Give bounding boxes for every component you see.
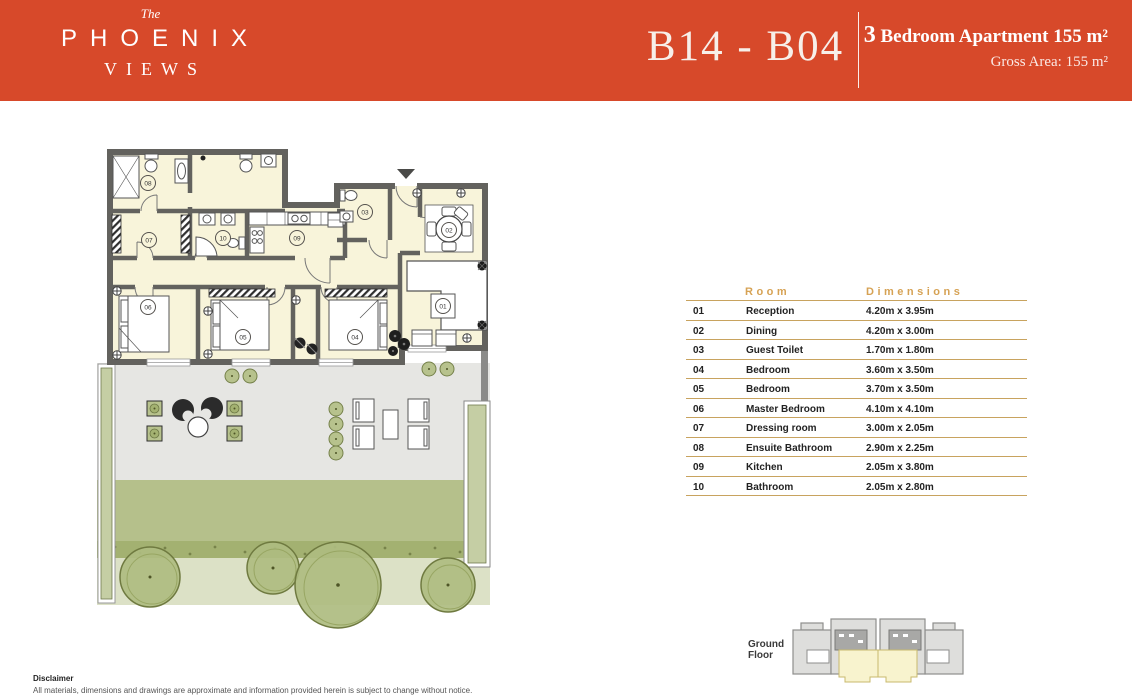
room-label-08: 08 [141,176,156,191]
row-room: Kitchen [746,457,866,478]
row-no: 05 [693,379,746,400]
header-dimensions: Dimensions [866,286,963,298]
row-no: 07 [693,418,746,439]
row-dimensions: 3.70m x 3.50m [866,379,1027,400]
svg-text:05: 05 [239,334,247,341]
room-label-01: 01 [436,299,451,314]
row-room: Bedroom [746,360,866,381]
apartment-info: 3 Bedroom Apartment 155 m² Gross Area: 1… [864,22,1108,71]
entrance-arrow-icon [397,169,415,179]
row-dimensions: 4.20m x 3.00m [866,321,1027,342]
header-bar: The PHOENIX VIEWS B14 - B04 3 Bedroom Ap… [0,0,1132,101]
row-no: 06 [693,399,746,420]
row-room: Master Bedroom [746,399,866,420]
row-no: 01 [693,301,746,322]
building-cores [835,630,921,650]
apartment-title-text: Bedroom Apartment 155 m² [876,26,1108,47]
row-dimensions: 1.70m x 1.80m [866,340,1027,361]
svg-text:03: 03 [361,209,369,216]
table-row: 10Bathroom2.05m x 2.80m [686,477,1027,497]
apartment-title: 3 Bedroom Apartment 155 m² [864,22,1108,49]
terrace-garden [97,348,490,628]
header-divider [858,12,859,88]
row-no: 03 [693,340,746,361]
brand-name: PHOENIX [48,25,253,53]
room-label-03: 03 [358,205,373,220]
header-room: Room [745,286,790,298]
row-dimensions: 2.90m x 2.25m [866,438,1027,459]
row-room: Bathroom [746,477,866,498]
dimensions-table: Room Dimensions 01Reception4.20m x 3.95m… [686,286,1027,496]
svg-text:02: 02 [445,227,453,234]
svg-text:06: 06 [144,304,152,311]
table-header: Room Dimensions [686,286,1027,301]
row-dimensions: 4.10m x 4.10m [866,399,1027,420]
planter-left [98,364,115,603]
row-no: 08 [693,438,746,459]
table-row: 01Reception4.20m x 3.95m [686,301,1027,321]
brand-the: The [48,6,253,22]
svg-text:09: 09 [293,235,301,242]
unit-code: B14 - B04 [638,22,853,71]
row-dimensions: 2.05m x 3.80m [866,457,1027,478]
room-label-10: 10 [216,231,231,246]
disclaimer: Disclaimer All materials, dimensions and… [33,674,933,695]
table-row: 09Kitchen2.05m x 3.80m [686,457,1027,477]
row-dimensions: 3.60m x 3.50m [866,360,1027,381]
apartment-number: 3 [864,22,876,48]
row-no: 04 [693,360,746,381]
table-row: 07Dressing room3.00m x 2.05m [686,418,1027,438]
floor-plan: 01 02 03 04 05 06 07 08 09 10 [95,145,495,690]
room-label-02: 02 [442,223,457,238]
row-room: Dressing room [746,418,866,439]
disclaimer-title: Disclaimer [33,674,933,683]
room-label-09: 09 [290,231,305,246]
room-label-05: 05 [236,330,251,345]
row-room: Bedroom [746,379,866,400]
brand-sub: VIEWS [48,59,253,80]
row-room: Reception [746,301,866,322]
brand-logo: The PHOENIX VIEWS [48,6,253,80]
row-dimensions: 3.00m x 2.05m [866,418,1027,439]
row-no: 02 [693,321,746,342]
table-row: 03Guest Toilet1.70m x 1.80m [686,340,1027,360]
row-room: Guest Toilet [746,340,866,361]
planter-right [464,401,490,567]
gross-area: Gross Area: 155 m² [864,54,1108,71]
svg-text:01: 01 [439,303,447,310]
ground-floor-label: Ground Floor [748,639,784,661]
table-row: 02Dining4.20m x 3.00m [686,321,1027,341]
wall-stub [481,348,488,403]
room-label-06: 06 [141,300,156,315]
row-no: 10 [693,477,746,498]
table-row: 04Bedroom3.60m x 3.50m [686,360,1027,380]
table-row: 06Master Bedroom4.10m x 4.10m [686,399,1027,419]
svg-text:04: 04 [351,334,359,341]
svg-text:10: 10 [219,235,227,242]
row-room: Dining [746,321,866,342]
row-dimensions: 2.05m x 2.80m [866,477,1027,498]
room-label-04: 04 [348,330,363,345]
row-no: 09 [693,457,746,478]
row-dimensions: 4.20m x 3.95m [866,301,1027,322]
svg-text:07: 07 [145,237,153,244]
row-room: Ensuite Bathroom [746,438,866,459]
room-label-07: 07 [142,233,157,248]
table-row: 05Bedroom3.70m x 3.50m [686,379,1027,399]
apartment: 01 02 03 04 05 06 07 08 09 10 [110,152,487,366]
table-row: 08Ensuite Bathroom2.90m x 2.25m [686,438,1027,458]
svg-text:08: 08 [144,180,152,187]
